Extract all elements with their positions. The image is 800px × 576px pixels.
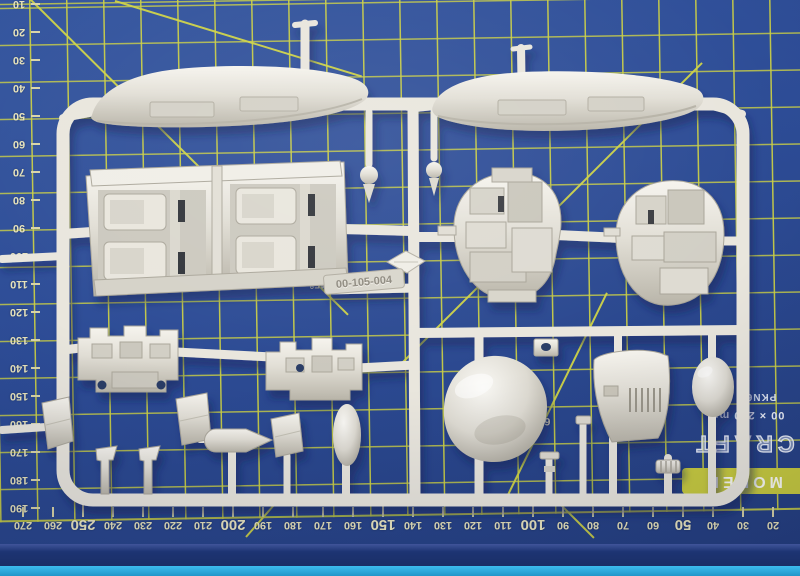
part-ribbed-cap: [656, 460, 680, 473]
table-edge-cyan-strip: [0, 566, 800, 576]
part-engine-detail-left: [438, 168, 561, 302]
part-cockpit-tub-assembly: [86, 161, 348, 296]
part-instrument-panel-right: [266, 338, 362, 400]
part-nacelle-half-left: [91, 66, 368, 127]
part-vented-plate: [534, 339, 558, 356]
part-egg-fairing: [692, 357, 734, 417]
part-ball-joint-2: [426, 162, 442, 196]
sprue: 00-105-004 00-105-004: [0, 0, 800, 576]
photo-scene: 45° 45° 60° 2702602502402302202102001901…: [0, 0, 800, 576]
part-ball-joint-1: [360, 166, 378, 203]
part-seat-column-1: [96, 446, 117, 494]
part-spinner: [205, 429, 272, 452]
part-instrument-panel-left: [78, 326, 178, 392]
part-flap-small-1: [42, 397, 73, 449]
part-flap-small-3: [271, 413, 303, 457]
part-seat-column-2: [139, 446, 160, 494]
part-nose-dome: [444, 356, 547, 462]
part-oval-tank: [333, 404, 361, 466]
mat-edge-dark-strip: [0, 544, 800, 566]
part-nacelle-half-right: [432, 71, 703, 131]
part-pin-cap: [576, 416, 591, 424]
part-engine-detail-right: [604, 181, 724, 306]
part-cowling-panel: [594, 350, 670, 442]
